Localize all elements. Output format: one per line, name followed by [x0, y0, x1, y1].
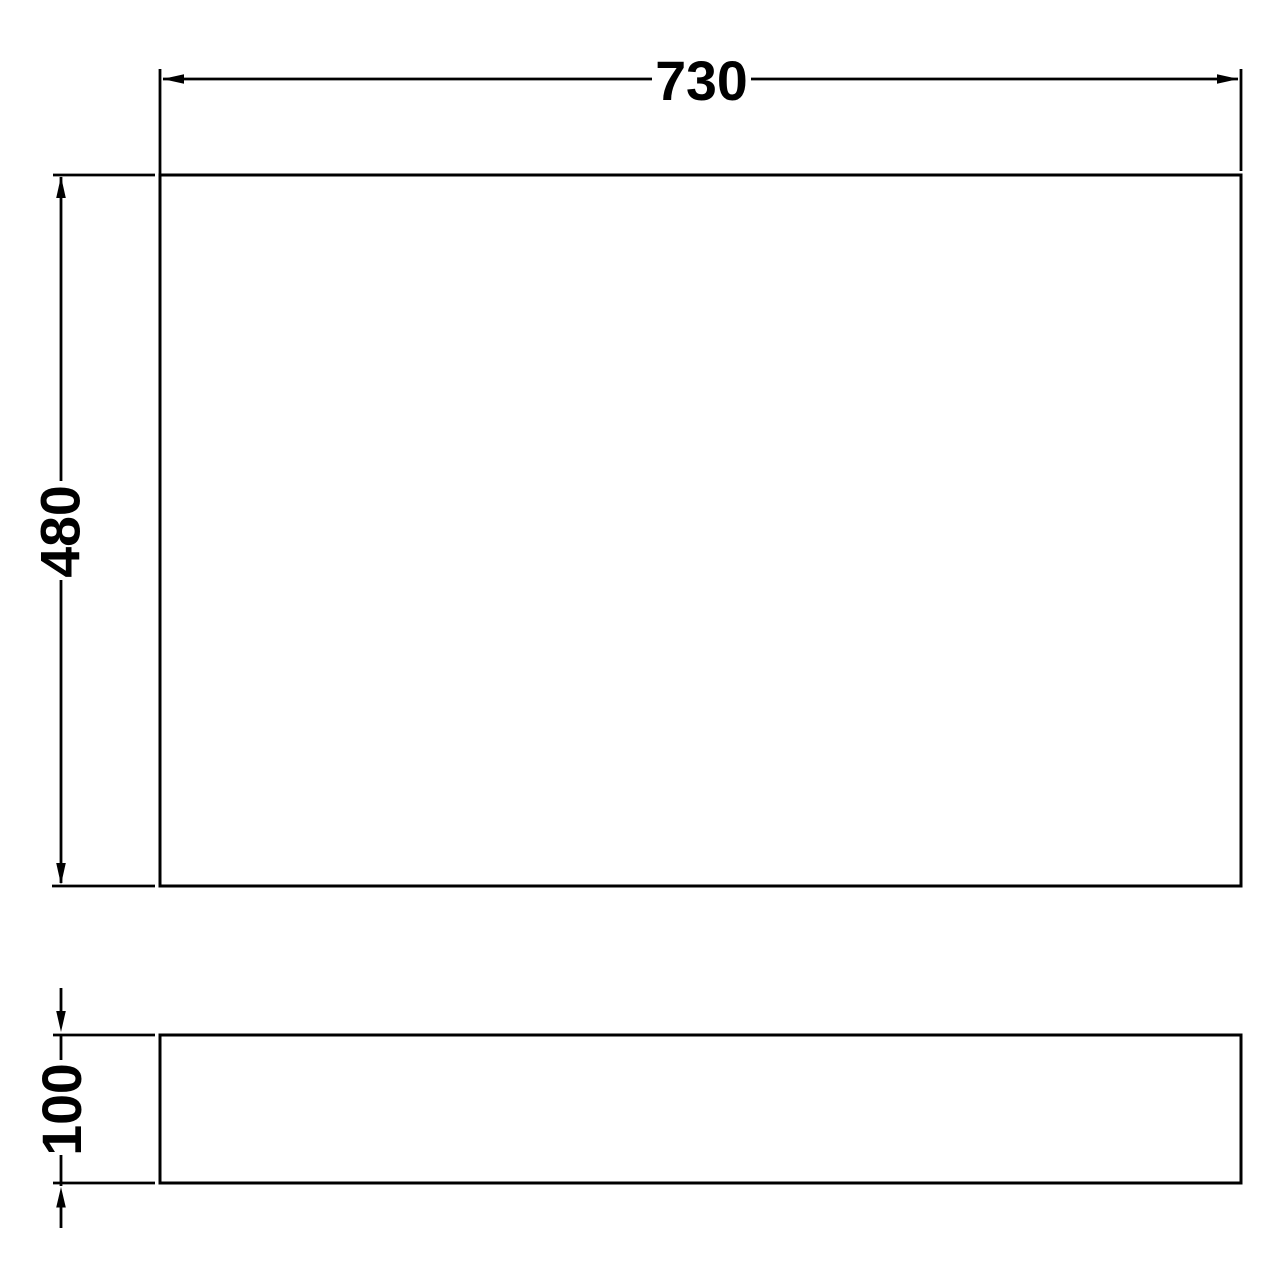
svg-text:480: 480	[30, 485, 92, 578]
svg-text:730: 730	[655, 50, 748, 112]
svg-text:100: 100	[31, 1063, 93, 1156]
